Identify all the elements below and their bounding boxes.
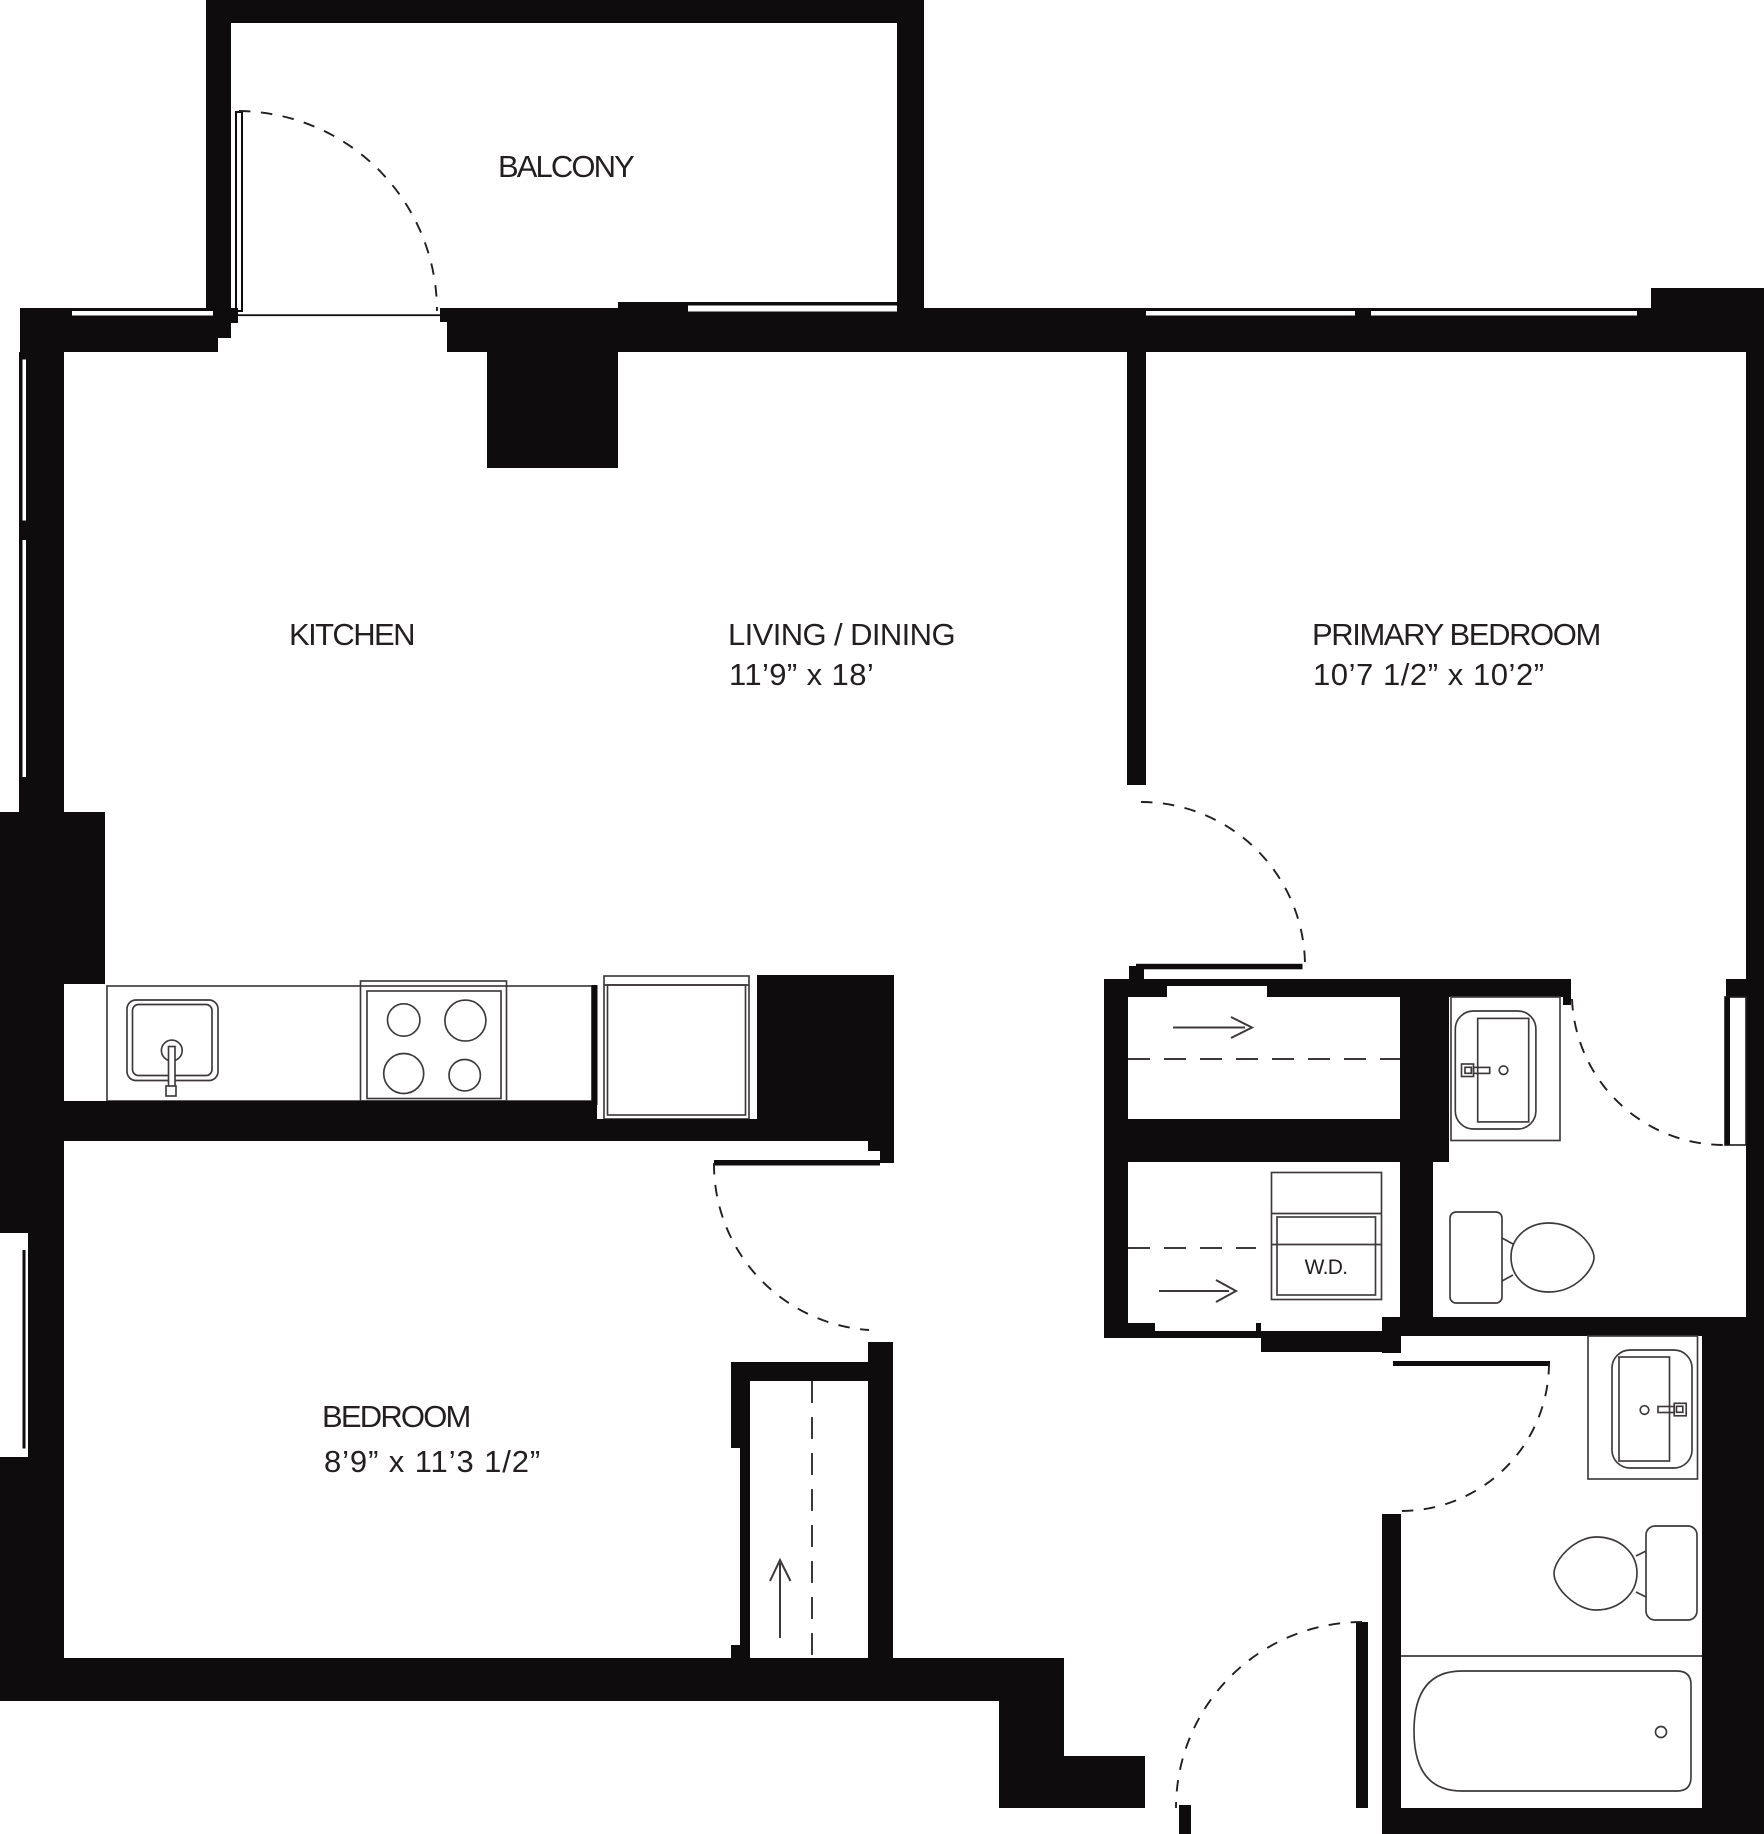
svg-text:BALCONY: BALCONY bbox=[498, 149, 634, 184]
svg-text:11’9” x 18’: 11’9” x 18’ bbox=[729, 657, 874, 692]
svg-text:8’9” x 11’3 1/2”: 8’9” x 11’3 1/2” bbox=[324, 1444, 541, 1479]
svg-text:PRIMARY BEDROOM: PRIMARY BEDROOM bbox=[1312, 617, 1600, 652]
svg-text:KITCHEN: KITCHEN bbox=[289, 617, 414, 652]
svg-text:W.D.: W.D. bbox=[1305, 1256, 1348, 1279]
svg-text:BEDROOM: BEDROOM bbox=[322, 1399, 470, 1434]
svg-text:LIVING / DINING: LIVING / DINING bbox=[728, 617, 955, 652]
svg-text:10’7 1/2” x 10’2”: 10’7 1/2” x 10’2” bbox=[1313, 657, 1545, 692]
